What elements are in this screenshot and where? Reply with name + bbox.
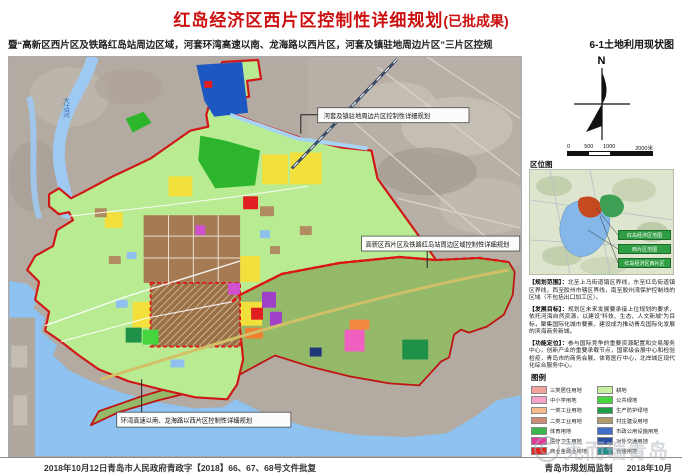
compass: N <box>527 56 676 144</box>
landuse-map: 大沽河 <box>8 56 522 457</box>
callout-gaoxin-label: 高新区西片区及铁路红岛站周边区域控制性详细规划 <box>365 240 509 249</box>
map-canvas: 大沽河 <box>9 57 521 456</box>
location-map-label: 红岛经济区范围 <box>618 230 671 240</box>
note-scope-label: 【规划范围】： <box>529 280 568 286</box>
note-goal-label: 【发展目标】： <box>529 307 568 313</box>
legend-item: 医疗卫生用地 <box>531 437 587 445</box>
legend-swatch <box>531 447 547 455</box>
north-label: N <box>527 56 676 66</box>
legend-swatch <box>597 417 613 425</box>
legend-swatch <box>597 437 613 445</box>
legend-label: 二类工业用地 <box>550 417 582 425</box>
legend-label: 医疗卫生用地 <box>550 437 582 445</box>
footer-date: 2018年10月 <box>627 462 672 474</box>
legend-label: 体育用地 <box>550 427 571 435</box>
legend-swatch <box>597 407 613 415</box>
scale-bar-graphic <box>567 151 653 156</box>
note-goal: 【发展目标】：规划区未来发展要承接上位规划的要求，依托河海自然资源，以建设“科技… <box>529 307 675 337</box>
legend-item: 耕地 <box>597 386 658 394</box>
legend-item: 商业金融业用地 <box>531 447 587 455</box>
planning-notes: 【规划范围】：北至上马街道镇区界线，东至红岛街道镇区界线，西至胶州市辖区界线，南… <box>529 280 675 375</box>
legend-swatch <box>531 407 547 415</box>
legend-label: 村庄建设用地 <box>616 417 648 425</box>
location-map: 红岛经济区范围 西片区范围 红岛经济区西片区 <box>529 169 674 275</box>
legend-item: 村庄建设用地 <box>597 417 658 425</box>
legend-swatch <box>597 396 613 404</box>
legend-swatch <box>597 386 613 394</box>
location-map-label: 红岛经济区西片区 <box>618 258 671 268</box>
legend-swatch <box>597 427 613 435</box>
legend-item: 体育用地 <box>531 427 587 435</box>
approval-text: 2018年10月12日青岛市人民政府青政字【2018】66、67、68号文件批复 <box>44 462 316 474</box>
note-scope: 【规划范围】：北至上马街道镇区界线，东至红岛街道镇区界线，西至胶州市辖区界线，南… <box>529 280 675 303</box>
legend-title: 图例 <box>531 372 675 383</box>
legend-swatch <box>597 447 613 455</box>
footer-maker: 青岛市规划局监制 <box>545 462 613 474</box>
subtitle-row: 暨“高新区西片区及铁路红岛站周边区域，河套环湾高速以南、龙海路以西片区，河套及镇… <box>8 36 674 51</box>
legend-label: 一类工业用地 <box>550 406 582 414</box>
legend-swatch <box>531 417 547 425</box>
page-title-main: 红岛经济区西片区控制性详细规划 <box>173 11 443 30</box>
legend-item: 生产防护绿地 <box>597 406 658 414</box>
legend-label: 中小学用地 <box>550 396 577 404</box>
legend-label: 商业金融业用地 <box>550 447 587 455</box>
note-function-label: 【功能定位】： <box>529 341 568 347</box>
legend-item: 中小学用地 <box>531 396 587 404</box>
legend-item: 三类居住用地 <box>531 386 587 394</box>
legend-label: 仓储用地 <box>616 447 637 455</box>
legend-label: 公共绿地 <box>616 396 637 404</box>
scale-bar: 0 500 1000 2000米 <box>567 144 653 158</box>
legend-item: 市政公用设施用地 <box>597 427 658 435</box>
scale-tick: 1000 <box>603 144 615 150</box>
plan-sheet: 红岛经济区西片区控制性详细规划(已批成果) 暨“高新区西片区及铁路红岛站周边区域… <box>0 0 682 476</box>
note-function: 【功能定位】：参与国际竞争的重要资源配置和交易服务中心，创新产业的重要承载节点，… <box>529 341 675 371</box>
legend-label: 市政公用设施用地 <box>616 427 658 435</box>
scale-tick: 0 <box>567 144 570 150</box>
north-arrow-icon <box>570 66 634 142</box>
callout-huanwan-label: 环湾高速以南、龙海路以西片区控制性详细规划 <box>121 416 252 425</box>
legend-label: 对外交通用地 <box>616 437 648 445</box>
legend-swatch <box>531 396 547 404</box>
legend-item: 公共绿地 <box>597 396 658 404</box>
legend-item: 二类工业用地 <box>531 417 587 425</box>
location-map-label: 西片区范围 <box>618 244 671 254</box>
legend-item: 一类工业用地 <box>531 406 587 414</box>
footer: 2018年10月12日青岛市人民政府青政字【2018】66、67、68号文件批复… <box>0 457 682 476</box>
page-title: 红岛经济区西片区控制性详细规划(已批成果) <box>0 6 682 31</box>
scale-labels: 0 500 1000 2000米 <box>567 144 653 151</box>
legend-label: 三类居住用地 <box>550 386 582 394</box>
legend-label: 生产防护绿地 <box>616 406 648 414</box>
legend-item: 仓储用地 <box>597 447 658 455</box>
river-label: 大沽河 <box>62 96 69 118</box>
callout-hetao-label: 河套及镇驻地周边片区控制性详细规划 <box>324 111 430 120</box>
scale-tick: 500 <box>584 144 593 150</box>
legend-item: 对外交通用地 <box>597 437 658 445</box>
subtitle: 暨“高新区西片区及铁路红岛站周边区域，河套环湾高速以南、龙海路以西片区，河套及镇… <box>8 37 493 51</box>
legend-swatch <box>531 386 547 394</box>
legend-swatch <box>531 437 547 445</box>
sidebar: N 0 500 1000 2000米 区位图 <box>527 56 676 457</box>
legend-label: 耕地 <box>616 386 627 394</box>
legend-swatch <box>531 427 547 435</box>
page-title-suffix: (已批成果) <box>443 13 508 29</box>
sheet-label: 6-1土地利用现状图 <box>590 36 674 51</box>
